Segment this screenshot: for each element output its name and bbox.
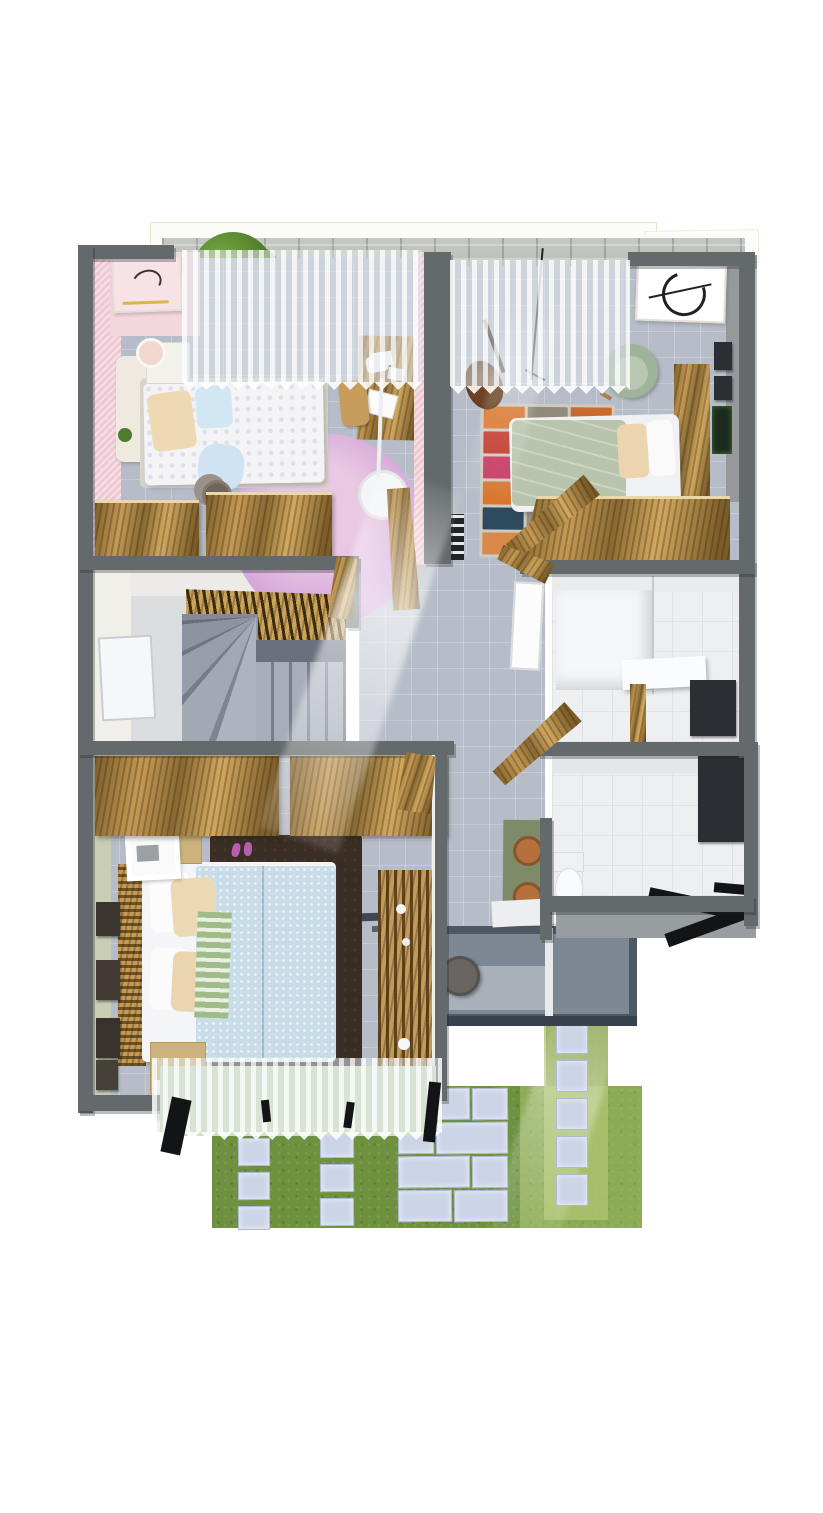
pink-wall-art-frame bbox=[111, 255, 183, 313]
paver-slab bbox=[398, 1156, 470, 1189]
gallery-frame-2 bbox=[96, 960, 120, 1000]
leaning-white-panel bbox=[510, 581, 545, 670]
table-lamp-pink bbox=[136, 338, 166, 368]
copper-basin-1 bbox=[513, 836, 543, 866]
paver-slab bbox=[398, 1190, 452, 1223]
frame-inner bbox=[136, 845, 159, 862]
bath1-wood-trim bbox=[630, 684, 646, 742]
art-scribble bbox=[129, 266, 165, 299]
wall-top-right bbox=[628, 252, 755, 266]
paver-slab bbox=[472, 1088, 508, 1120]
paver-tile bbox=[556, 1098, 588, 1130]
paver-tile bbox=[556, 1022, 588, 1054]
curtain-pink-window bbox=[182, 250, 422, 382]
bath1-dark-vanity bbox=[690, 680, 736, 736]
paver-tile bbox=[238, 1138, 270, 1166]
wall-frame-small-2 bbox=[714, 376, 732, 400]
paver-tile bbox=[556, 1136, 588, 1168]
wardrobe-pink-right bbox=[206, 492, 332, 561]
dresser-cup bbox=[398, 1038, 410, 1050]
wardrobe-master-left bbox=[95, 753, 279, 836]
dresser-dish-1 bbox=[396, 904, 406, 914]
wall-pink-room-bottom bbox=[78, 556, 359, 570]
wall-left-spine bbox=[78, 245, 93, 1113]
gallery-frame-1 bbox=[96, 902, 120, 936]
wall-right-spine-upper bbox=[739, 252, 755, 758]
bed1-pillow-blue bbox=[195, 385, 234, 429]
circular-wall-art bbox=[635, 262, 727, 323]
bath2-mirror-panel bbox=[698, 756, 744, 842]
terrace-bottom-lip bbox=[437, 1016, 637, 1026]
wall-master-bottom-left bbox=[78, 1095, 162, 1111]
dresser-dish-2 bbox=[402, 938, 410, 946]
wall-bath2-bottom bbox=[548, 896, 754, 912]
wall-master-right bbox=[432, 755, 447, 1101]
wall-master-top bbox=[78, 741, 454, 755]
paver-tile bbox=[238, 1206, 270, 1230]
paver-tile bbox=[556, 1060, 588, 1092]
gallery-frame-3 bbox=[96, 1018, 120, 1058]
wall-frame-botanical bbox=[712, 406, 732, 454]
paver-tile bbox=[320, 1198, 354, 1226]
bed1-pillow-beige bbox=[146, 389, 198, 453]
bed2-pillow-white bbox=[646, 419, 677, 477]
terrace-white-divider bbox=[545, 928, 553, 1022]
master-duvet-fold bbox=[262, 866, 264, 1058]
master-throw-striped bbox=[194, 911, 232, 1018]
wardrobe-pink-left bbox=[95, 500, 199, 561]
bed2-pillow-beige bbox=[617, 423, 650, 478]
stair-winder-steps bbox=[182, 614, 258, 744]
paver-tile bbox=[556, 1174, 588, 1206]
paver-slab bbox=[436, 1122, 508, 1155]
wall-bath2-left bbox=[540, 818, 552, 940]
wall-bath-divider bbox=[538, 742, 755, 756]
art-gold-line bbox=[123, 300, 169, 305]
wall-green-room-bottom bbox=[520, 560, 755, 574]
white-frame-object bbox=[125, 833, 181, 882]
gallery-frame-4 bbox=[96, 1060, 118, 1090]
small-plant bbox=[118, 428, 132, 442]
whiteboard bbox=[98, 635, 156, 722]
paver-slab bbox=[454, 1190, 508, 1223]
paver-tile bbox=[320, 1164, 354, 1192]
wall-frame-small-1 bbox=[714, 342, 732, 370]
floorplan-render bbox=[0, 0, 823, 1513]
paver-slab bbox=[472, 1156, 508, 1188]
paver-tile bbox=[238, 1172, 270, 1200]
curtain-master-window bbox=[152, 1058, 442, 1132]
